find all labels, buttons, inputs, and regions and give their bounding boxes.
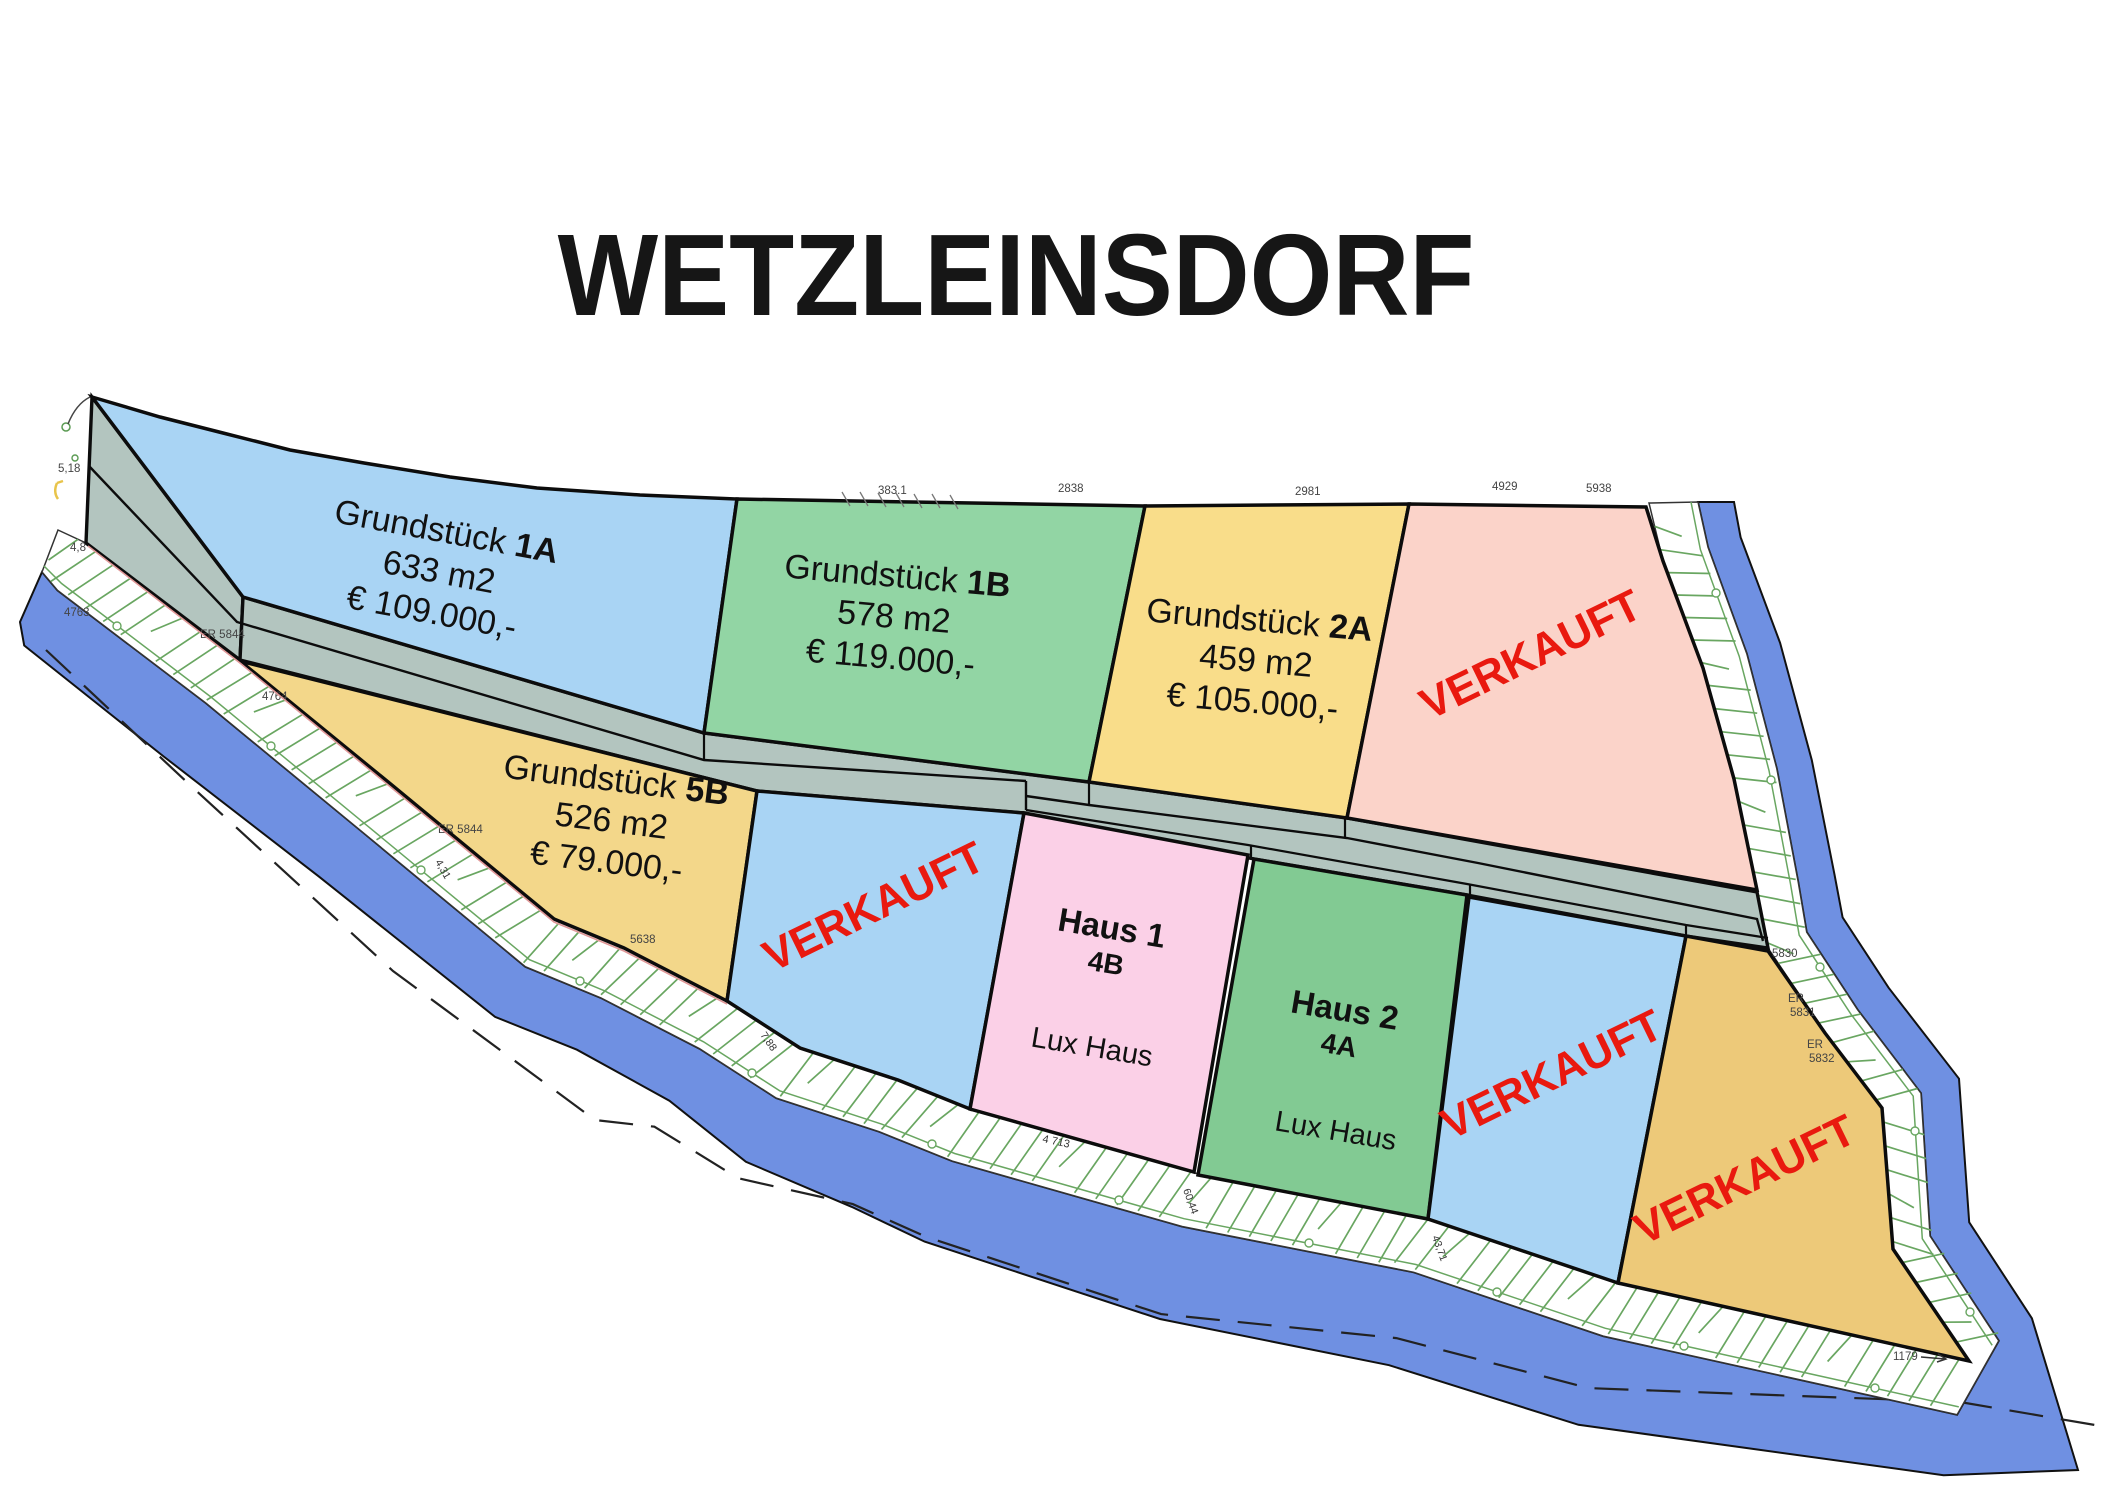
svg-text:5830: 5830	[1772, 948, 1798, 960]
svg-text:WETZLEINSDORF: WETZLEINSDORF	[558, 210, 1475, 340]
svg-text:ER 5844: ER 5844	[200, 629, 245, 641]
svg-text:2981: 2981	[1295, 486, 1321, 498]
svg-text:5638: 5638	[630, 934, 656, 946]
svg-text:1179: 1179	[1893, 1351, 1918, 1363]
svg-text:4,8: 4,8	[70, 542, 86, 554]
svg-text:4A: 4A	[1319, 1027, 1359, 1063]
svg-text:383.1: 383.1	[878, 485, 907, 497]
svg-text:4929: 4929	[1492, 481, 1518, 493]
svg-text:5938: 5938	[1586, 483, 1612, 495]
svg-text:4763: 4763	[64, 607, 90, 619]
svg-text:5,18: 5,18	[58, 463, 80, 475]
svg-text:4B: 4B	[1086, 945, 1126, 981]
svg-text:2838: 2838	[1058, 483, 1084, 495]
svg-text:ER 5844: ER 5844	[438, 824, 483, 836]
